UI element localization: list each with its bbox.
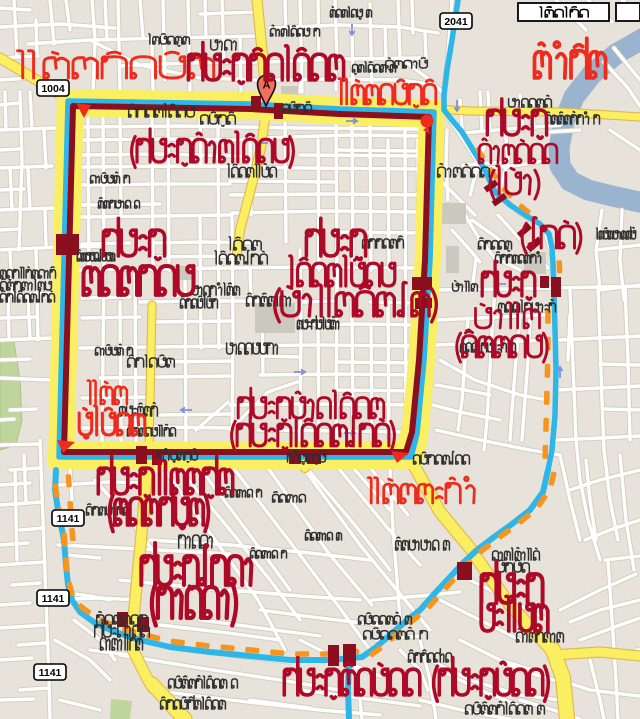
svg-text:1004: 1004 xyxy=(41,83,65,95)
svg-text:1141: 1141 xyxy=(57,513,80,525)
svg-text:2041: 2041 xyxy=(444,16,468,28)
svg-text:1141: 1141 xyxy=(39,667,62,679)
svg-text:1141: 1141 xyxy=(42,593,65,605)
